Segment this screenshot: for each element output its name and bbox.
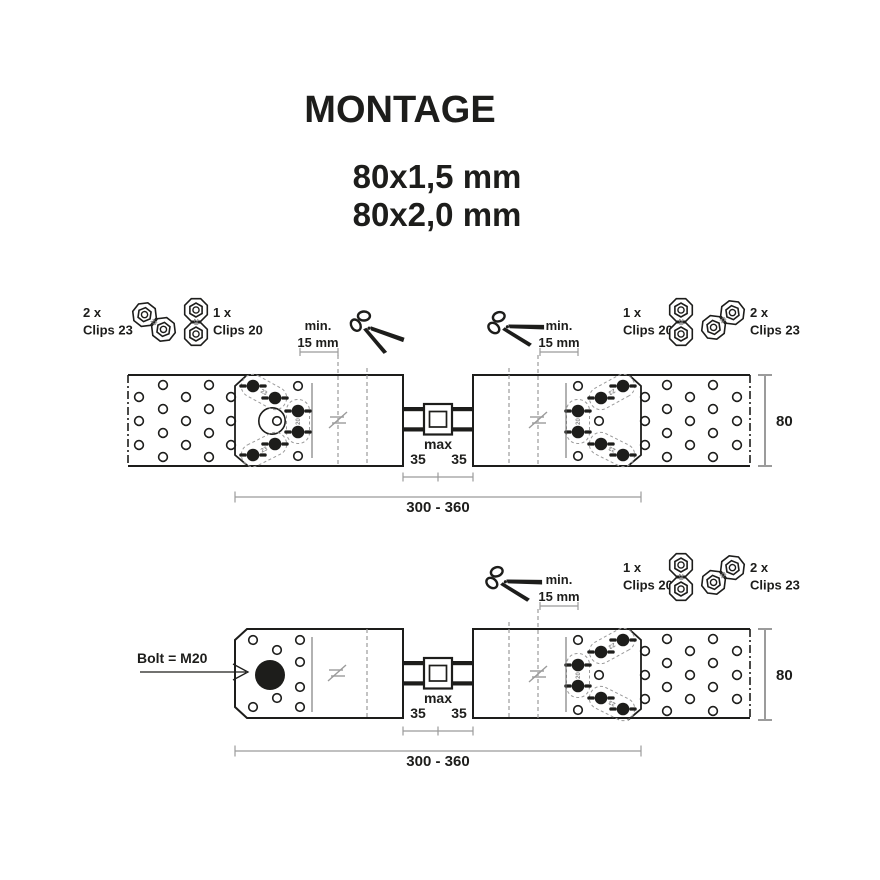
scissors-blade: [500, 327, 534, 347]
gusset-hole: [273, 417, 282, 426]
clip-wing: [584, 684, 591, 687]
page: MONTAGE80x1,5 mm80x2,0 mm232023232023353…: [0, 0, 880, 880]
strap-hole: [709, 635, 718, 644]
strap-hole: [227, 393, 236, 402]
strap-hole: [709, 405, 718, 414]
clip-fastener: [617, 380, 630, 393]
clip-wing: [587, 442, 594, 445]
dim-300-label: 300 - 360: [406, 499, 469, 516]
gusset-hole: [294, 452, 303, 461]
strap-hole: [663, 707, 672, 716]
strap-hole: [641, 695, 650, 704]
strap-hole: [709, 707, 718, 716]
strap-hole: [159, 405, 168, 414]
strap-hole: [135, 393, 144, 402]
strap-hole: [663, 429, 672, 438]
clip-wing: [259, 384, 266, 387]
clip-wing: [587, 650, 594, 653]
clip-fastener: [572, 659, 585, 672]
clip-wing: [609, 707, 616, 710]
strap-hole: [205, 405, 214, 414]
clip-size-tag: 20: [576, 418, 582, 425]
clip-fastener: [269, 438, 282, 451]
strap-hole: [205, 453, 214, 462]
clips-20-icon: 20: [670, 299, 693, 346]
strap-hole: [686, 671, 695, 680]
clip-fastener: [595, 438, 608, 451]
clip-size-tag: 20: [677, 319, 683, 326]
scissors-icon: [344, 305, 408, 359]
clip-wing: [629, 638, 636, 641]
clip-size-tag: 20: [192, 319, 198, 326]
clip-wing: [564, 409, 571, 412]
dim-80-label: 80: [776, 667, 793, 684]
scissors-blade: [369, 320, 405, 347]
clip-wing: [304, 409, 311, 412]
size-label-2: 80x2,0 mm: [353, 196, 522, 233]
bolt-m20: [255, 660, 285, 690]
clips-23-icon: 23: [129, 299, 180, 345]
strap-hole: [733, 441, 742, 450]
strap-hole: [733, 695, 742, 704]
clip-fastener: [595, 692, 608, 705]
strap-hole: [205, 429, 214, 438]
clip-wing: [564, 663, 571, 666]
gusset-hole: [294, 382, 303, 391]
dim-80-label: 80: [776, 413, 793, 430]
strap-hole: [227, 441, 236, 450]
clip-wing: [609, 453, 616, 456]
strap-hole: [641, 441, 650, 450]
clip-wing: [239, 453, 246, 456]
clip-fastener: [292, 405, 305, 418]
clips-23-icon: 23: [698, 552, 749, 598]
buckle-slot: [430, 666, 447, 682]
legend-qty: 2 x: [83, 305, 102, 320]
clip-nut-hole: [193, 307, 199, 313]
buckle-slot: [430, 412, 447, 428]
clips-20-icon: 20: [185, 299, 208, 346]
montage-diagram: MONTAGE80x1,5 mm80x2,0 mm232023232023353…: [0, 0, 880, 880]
strap-hole: [686, 441, 695, 450]
legend-label: Clips 20: [213, 323, 263, 338]
gusset-hole: [296, 683, 305, 692]
gusset-hole: [249, 703, 258, 712]
strap-hole: [135, 417, 144, 426]
page-title: MONTAGE: [304, 89, 495, 131]
dim-35-label: 35: [410, 705, 426, 721]
clip-size-tag: 20: [677, 574, 683, 581]
scissors-handle: [484, 576, 499, 591]
clip-wing: [587, 696, 594, 699]
bolt-label: Bolt = M20: [137, 650, 208, 666]
min15-label: min.: [305, 318, 332, 333]
min15-label: 15 mm: [538, 335, 579, 350]
legend-qty: 2 x: [750, 560, 769, 575]
clip-fastener: [595, 646, 608, 659]
strap-hole: [135, 441, 144, 450]
gusset-hole: [273, 694, 282, 703]
strap-hole: [663, 453, 672, 462]
clip-nut-hole: [678, 586, 684, 592]
gusset-hole: [296, 636, 305, 645]
clip-wing: [629, 707, 636, 710]
clip-wing: [239, 384, 246, 387]
strap-hole: [663, 405, 672, 414]
strap-hole: [182, 441, 191, 450]
gusset-hole: [574, 636, 583, 645]
gusset-hole: [574, 706, 583, 715]
scissors-icon: [484, 308, 546, 349]
clip-wing: [261, 442, 268, 445]
strap-hole: [733, 647, 742, 656]
legend-label: Clips 20: [623, 578, 673, 593]
clip-fastener: [269, 392, 282, 405]
strap-hole: [641, 393, 650, 402]
clip-wing: [564, 684, 571, 687]
clip-fastener: [617, 703, 630, 716]
dim-35-label: 35: [451, 705, 467, 721]
strap-hole: [686, 393, 695, 402]
gusset-hole: [574, 382, 583, 391]
legend-qty: 2 x: [750, 305, 769, 320]
clip-nut-hole: [678, 307, 684, 313]
clip-wing: [584, 409, 591, 412]
clip-fastener: [572, 405, 585, 418]
clip-fastener: [617, 449, 630, 462]
strap-hole: [709, 381, 718, 390]
strap-hole: [733, 671, 742, 680]
max-label: max: [424, 690, 452, 706]
clip-wing: [281, 442, 288, 445]
min15-label: 15 mm: [538, 589, 579, 604]
clip-nut-hole: [193, 331, 199, 337]
gusset-hole: [296, 703, 305, 712]
strap-hole: [159, 429, 168, 438]
clip-size-tag: 20: [576, 672, 582, 679]
strap-hole: [641, 647, 650, 656]
dim-35-label: 35: [451, 451, 467, 467]
gusset-hole: [273, 646, 282, 655]
clips-20-icon: 20: [670, 554, 693, 601]
legend-qty: 1 x: [623, 560, 642, 575]
strap-hole: [709, 429, 718, 438]
strap-hole: [663, 635, 672, 644]
clip-fastener: [247, 380, 260, 393]
clip-wing: [587, 396, 594, 399]
clip-wing: [564, 430, 571, 433]
gusset-hole: [595, 417, 604, 426]
scissors-handle: [486, 321, 501, 336]
strap-hole: [227, 417, 236, 426]
clip-fastener: [595, 392, 608, 405]
clip-wing: [629, 384, 636, 387]
clip-nut-hole: [678, 331, 684, 337]
scissors-icon: [482, 563, 544, 604]
clip-wing: [584, 663, 591, 666]
clip-wing: [284, 409, 291, 412]
legend-qty: 1 x: [213, 305, 232, 320]
dim-35-label: 35: [410, 451, 426, 467]
legend-label: Clips 23: [750, 578, 800, 593]
min15-label: min.: [546, 572, 573, 587]
min15-label: 15 mm: [297, 335, 338, 350]
strap-hole: [641, 417, 650, 426]
clip-wing: [584, 430, 591, 433]
strap-hole: [159, 381, 168, 390]
legend-label: Clips 20: [623, 323, 673, 338]
strap-hole: [733, 417, 742, 426]
clip-fastener: [247, 449, 260, 462]
strap-hole: [733, 393, 742, 402]
gusset-hole: [574, 452, 583, 461]
gusset-hole: [249, 636, 258, 645]
strap-hole: [182, 393, 191, 402]
scissors-blade: [498, 582, 532, 602]
strap-hole: [686, 647, 695, 656]
strap-hole: [663, 381, 672, 390]
clip-fastener: [617, 634, 630, 647]
scissors-handle: [358, 311, 370, 320]
clip-fastener: [292, 426, 305, 439]
clip-wing: [607, 396, 614, 399]
dim-300-label: 300 - 360: [406, 753, 469, 770]
max-label: max: [424, 436, 452, 452]
strap-hole: [709, 659, 718, 668]
strap-hole: [159, 453, 168, 462]
strap-hole: [686, 417, 695, 426]
clips-23-icon: 23: [698, 297, 749, 343]
strap-hole: [205, 381, 214, 390]
legend-label: Clips 23: [83, 323, 133, 338]
strap-hole: [709, 683, 718, 692]
strap-hole: [686, 695, 695, 704]
strap-hole: [641, 671, 650, 680]
strap-hole: [182, 417, 191, 426]
clip-fastener: [572, 426, 585, 439]
size-label-1: 80x1,5 mm: [353, 158, 522, 195]
clip-size-tag: 20: [296, 418, 302, 425]
clip-nut-hole: [678, 562, 684, 568]
strap-hole: [663, 683, 672, 692]
gusset-hole: [296, 658, 305, 667]
clip-wing: [629, 453, 636, 456]
clip-fastener: [572, 680, 585, 693]
legend-qty: 1 x: [623, 305, 642, 320]
legend-label: Clips 23: [750, 323, 800, 338]
min15-label: min.: [546, 318, 573, 333]
clip-wing: [281, 396, 288, 399]
strap-hole: [709, 453, 718, 462]
gusset-hole: [595, 671, 604, 680]
scissors-handle: [490, 566, 504, 579]
clip-wing: [304, 430, 311, 433]
scissors-handle: [492, 311, 506, 324]
strap-hole: [663, 659, 672, 668]
clip-wing: [284, 430, 291, 433]
clip-wing: [607, 650, 614, 653]
